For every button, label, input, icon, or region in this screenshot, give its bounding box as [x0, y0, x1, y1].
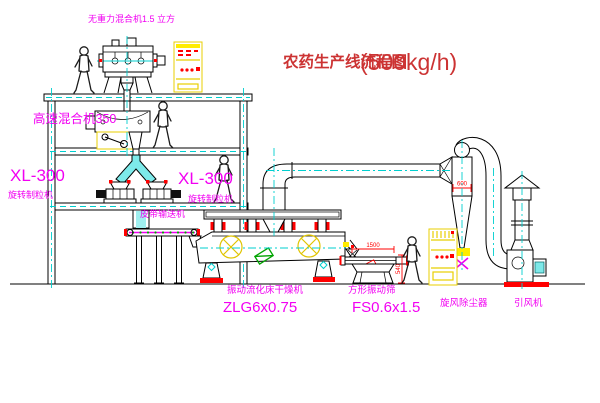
- label-fan: 引风机: [514, 297, 543, 309]
- granulator-left: [96, 180, 136, 203]
- vibrating-screen: 1500 540: [340, 243, 410, 283]
- cyclone-separator: 600: [452, 137, 512, 270]
- label-granulator-right-model: XL-300: [178, 169, 233, 188]
- label-screen-name: 方形振动筛: [348, 284, 396, 296]
- label-granulator-left-model: XL-300: [10, 166, 65, 185]
- label-granulator-left-name: 旋转制粒机: [8, 189, 53, 200]
- control-cabinet-lower: [429, 229, 457, 285]
- screen-dim-length-text: 1500: [366, 243, 380, 249]
- worker-figure-top-floor: [74, 47, 94, 93]
- label-cyclone: 旋风除尘器: [440, 297, 488, 309]
- control-cabinet-upper: [174, 42, 202, 92]
- high-speed-mixer: [86, 101, 150, 155]
- flow-diagram-page: 600: [0, 0, 600, 403]
- label-gravity-mixer: 无重力混合机1.5 立方: [88, 13, 175, 24]
- label-dryer-model: ZLG6x0.75: [223, 299, 297, 316]
- label-high-speed-mixer: 高速混合机350: [33, 111, 116, 126]
- diagram-canvas: 600: [0, 0, 600, 403]
- y-splitter-chute: [116, 155, 156, 184]
- label-belt-conveyor: 皮带输送机: [140, 208, 185, 219]
- granulator-right: [141, 180, 181, 203]
- screen-dim-height-text: 540: [396, 263, 402, 274]
- label-screen-model: FS0.6x1.5: [352, 299, 420, 316]
- screen-dimension-length: 1500: [352, 243, 394, 253]
- label-dryer-name: 振动流化床干燥机: [227, 284, 304, 296]
- worker-figure-second-floor: [153, 102, 173, 148]
- belt-conveyor: [124, 229, 201, 283]
- induced-draft-fan: [504, 250, 549, 287]
- label-granulator-right-name: 旋转制粒机: [188, 193, 233, 204]
- diagram-title: 农药生产线流程图 (500kg/h): [282, 49, 457, 75]
- title-capacity: (500kg/h): [360, 49, 457, 75]
- fluid-bed-dryer: [196, 210, 357, 283]
